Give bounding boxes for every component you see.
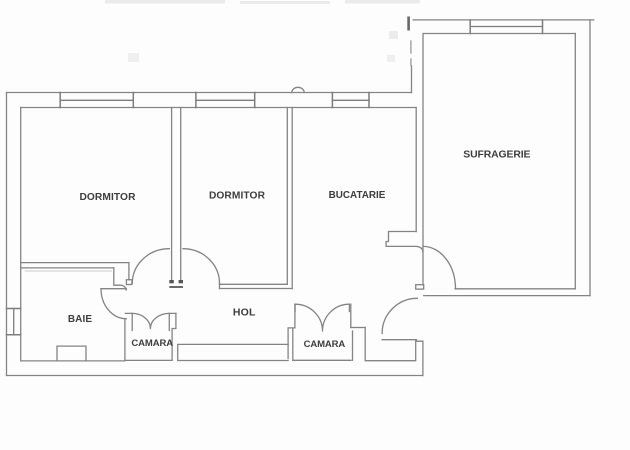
svg-text:DORMITOR: DORMITOR [209, 191, 266, 202]
svg-text:HOL: HOL [233, 306, 256, 318]
svg-text:DORMITOR: DORMITOR [79, 192, 136, 203]
svg-text:CAMARA: CAMARA [131, 338, 173, 349]
svg-text:BAIE: BAIE [68, 314, 93, 325]
svg-text:BUCATARIE: BUCATARIE [329, 190, 386, 201]
svg-text:CAMARA: CAMARA [304, 339, 346, 350]
svg-text:SUFRAGERIE: SUFRAGERIE [463, 149, 530, 160]
